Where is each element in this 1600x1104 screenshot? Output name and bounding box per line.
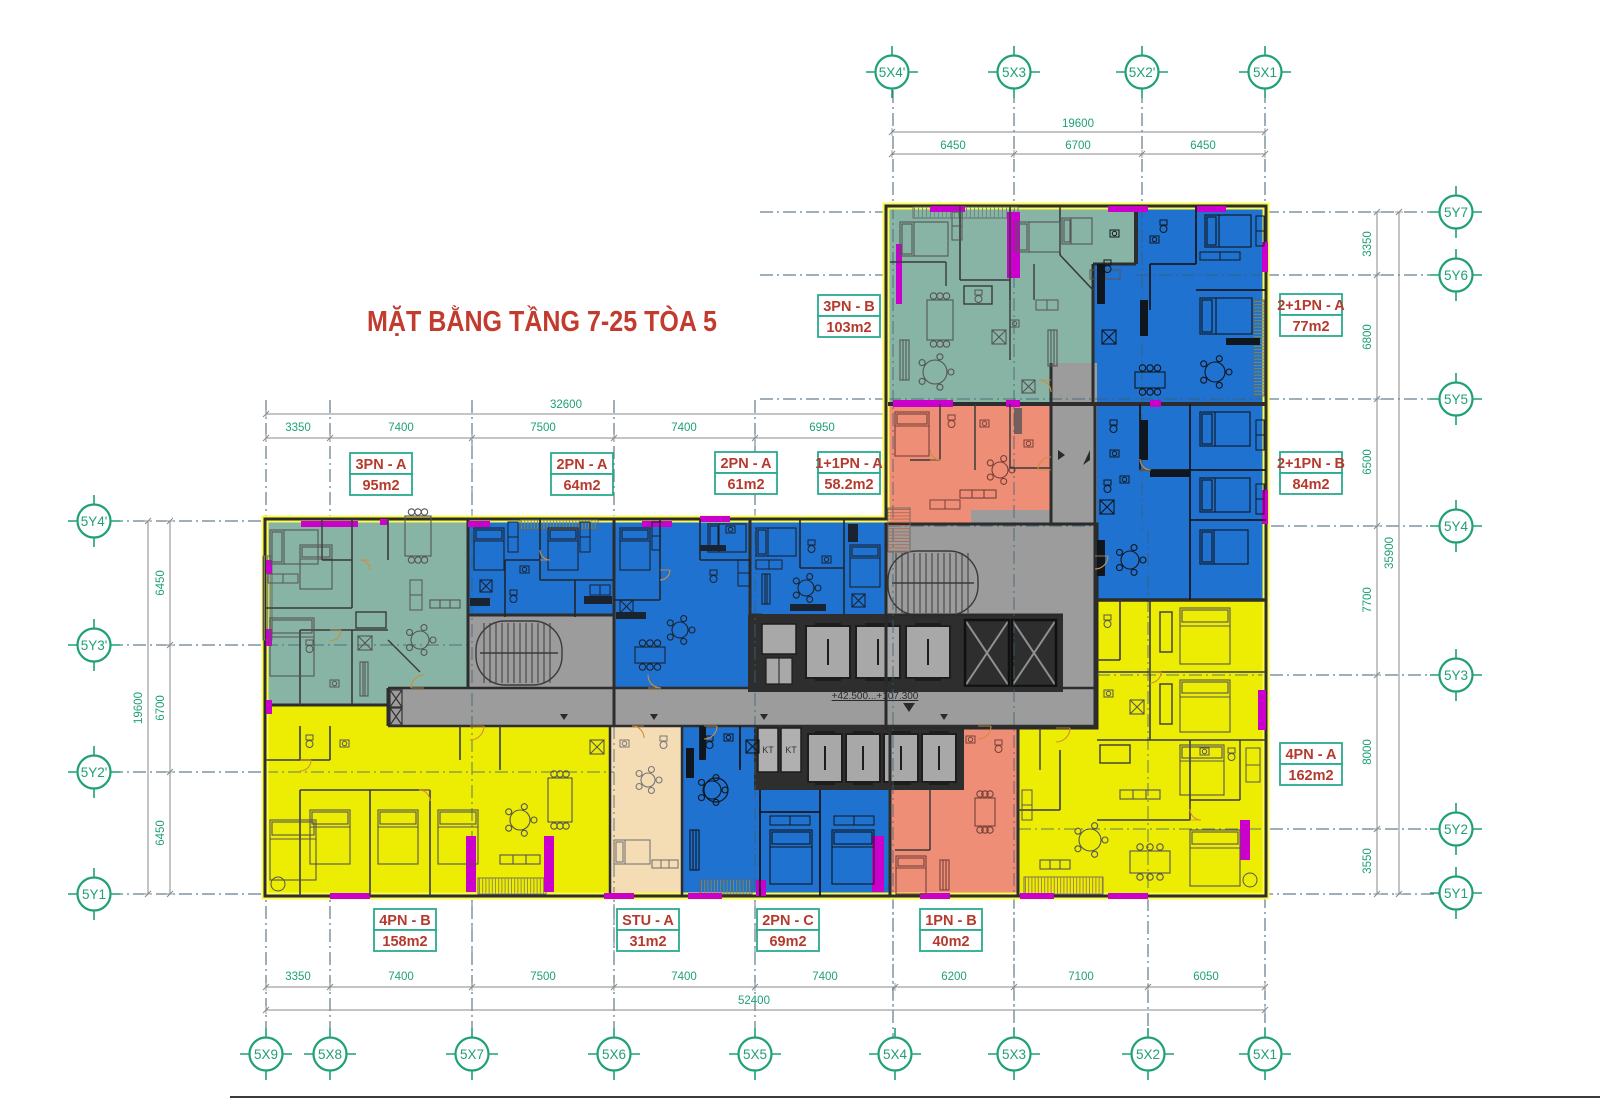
svg-text:STU - A: STU - A bbox=[622, 913, 674, 929]
svg-text:5X5: 5X5 bbox=[743, 1047, 767, 1062]
svg-text:5X1: 5X1 bbox=[1253, 65, 1277, 80]
svg-text:5Y2': 5Y2' bbox=[81, 765, 108, 780]
svg-text:7700: 7700 bbox=[1362, 587, 1374, 613]
svg-text:84m2: 84m2 bbox=[1292, 477, 1329, 493]
svg-text:7400: 7400 bbox=[671, 971, 697, 983]
svg-text:5X3: 5X3 bbox=[1002, 65, 1026, 80]
svg-text:+42.500...+107.300: +42.500...+107.300 bbox=[832, 691, 919, 702]
svg-text:6450: 6450 bbox=[155, 570, 167, 596]
svg-text:5Y1: 5Y1 bbox=[1444, 886, 1468, 901]
svg-text:5Y5: 5Y5 bbox=[1444, 392, 1468, 407]
svg-text:KT: KT bbox=[785, 745, 797, 755]
svg-text:52400: 52400 bbox=[738, 995, 770, 1007]
svg-text:19600: 19600 bbox=[133, 692, 145, 724]
svg-text:5Y2: 5Y2 bbox=[1444, 822, 1468, 837]
svg-text:7400: 7400 bbox=[388, 971, 414, 983]
svg-text:31m2: 31m2 bbox=[629, 934, 666, 950]
svg-text:6500: 6500 bbox=[1362, 449, 1374, 475]
svg-text:KT: KT bbox=[762, 745, 774, 755]
svg-text:5Y3': 5Y3' bbox=[81, 638, 108, 653]
svg-text:5X4': 5X4' bbox=[879, 65, 906, 80]
svg-text:5Y6: 5Y6 bbox=[1444, 268, 1468, 283]
svg-text:5Y1: 5Y1 bbox=[82, 887, 106, 902]
svg-text:3350: 3350 bbox=[285, 971, 311, 983]
svg-text:2+1PN - A: 2+1PN - A bbox=[1277, 298, 1345, 314]
svg-text:3350: 3350 bbox=[285, 422, 311, 434]
svg-text:7400: 7400 bbox=[812, 971, 838, 983]
svg-text:5X3: 5X3 bbox=[1002, 1047, 1026, 1062]
svg-text:32600: 32600 bbox=[550, 399, 582, 411]
svg-text:5X8: 5X8 bbox=[318, 1047, 342, 1062]
svg-text:4PN - A: 4PN - A bbox=[1285, 747, 1337, 763]
svg-text:1PN - B: 1PN - B bbox=[925, 913, 977, 929]
svg-text:5X7: 5X7 bbox=[460, 1047, 484, 1062]
svg-text:4PN - B: 4PN - B bbox=[379, 913, 431, 929]
svg-text:3350: 3350 bbox=[1362, 231, 1374, 257]
svg-text:7100: 7100 bbox=[1068, 971, 1094, 983]
svg-text:69m2: 69m2 bbox=[769, 934, 806, 950]
svg-text:2+1PN - B: 2+1PN - B bbox=[1277, 456, 1345, 472]
svg-text:6700: 6700 bbox=[1065, 140, 1091, 152]
svg-text:6450: 6450 bbox=[940, 140, 966, 152]
svg-text:103m2: 103m2 bbox=[826, 320, 871, 336]
svg-text:5X4: 5X4 bbox=[883, 1047, 908, 1062]
svg-text:35900: 35900 bbox=[1384, 537, 1396, 569]
svg-text:64m2: 64m2 bbox=[563, 478, 600, 494]
svg-text:162m2: 162m2 bbox=[1288, 768, 1333, 784]
svg-text:5Y4': 5Y4' bbox=[81, 514, 108, 529]
svg-text:8000: 8000 bbox=[1362, 739, 1374, 765]
svg-text:5X1: 5X1 bbox=[1253, 1047, 1277, 1062]
svg-text:3550: 3550 bbox=[1362, 848, 1374, 874]
svg-text:5X2': 5X2' bbox=[1129, 65, 1156, 80]
svg-text:5Y7: 5Y7 bbox=[1444, 205, 1468, 220]
svg-text:2PN - A: 2PN - A bbox=[556, 457, 608, 473]
svg-text:6950: 6950 bbox=[809, 422, 835, 434]
svg-text:6450: 6450 bbox=[1190, 140, 1216, 152]
svg-text:6450: 6450 bbox=[155, 820, 167, 846]
svg-text:5X2: 5X2 bbox=[1136, 1047, 1160, 1062]
svg-text:MẶT BẰNG TẦNG 7-25 TÒA 5: MẶT BẰNG TẦNG 7-25 TÒA 5 bbox=[367, 304, 717, 338]
svg-text:5Y3: 5Y3 bbox=[1444, 668, 1468, 683]
svg-text:7500: 7500 bbox=[530, 422, 556, 434]
svg-text:77m2: 77m2 bbox=[1292, 319, 1329, 335]
svg-text:7400: 7400 bbox=[671, 422, 697, 434]
svg-text:2PN - C: 2PN - C bbox=[762, 913, 814, 929]
svg-text:3PN - A: 3PN - A bbox=[355, 457, 407, 473]
svg-text:58.2m2: 58.2m2 bbox=[824, 477, 873, 493]
svg-text:1+1PN - A: 1+1PN - A bbox=[815, 456, 883, 472]
svg-text:6800: 6800 bbox=[1362, 324, 1374, 350]
svg-text:2PN - A: 2PN - A bbox=[720, 456, 772, 472]
svg-text:7400: 7400 bbox=[388, 422, 414, 434]
svg-text:7500: 7500 bbox=[530, 971, 556, 983]
svg-text:61m2: 61m2 bbox=[727, 477, 764, 493]
svg-text:6200: 6200 bbox=[941, 971, 967, 983]
svg-text:5X9: 5X9 bbox=[254, 1047, 278, 1062]
svg-text:5X6: 5X6 bbox=[602, 1047, 626, 1062]
svg-text:95m2: 95m2 bbox=[362, 478, 399, 494]
svg-text:40m2: 40m2 bbox=[932, 934, 969, 950]
svg-text:6700: 6700 bbox=[155, 695, 167, 721]
svg-text:6050: 6050 bbox=[1193, 971, 1219, 983]
svg-text:3PN - B: 3PN - B bbox=[823, 299, 875, 315]
svg-text:5Y4: 5Y4 bbox=[1444, 519, 1469, 534]
svg-text:158m2: 158m2 bbox=[382, 934, 427, 950]
svg-text:19600: 19600 bbox=[1062, 118, 1094, 130]
